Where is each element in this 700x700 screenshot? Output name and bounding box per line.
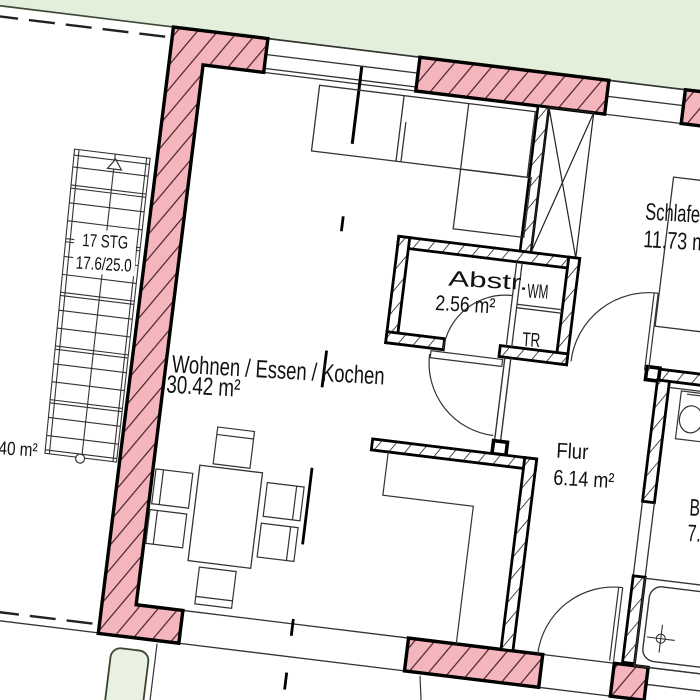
svg-text:2.56 m²: 2.56 m² xyxy=(435,291,496,318)
svg-text:17 STG: 17 STG xyxy=(82,230,129,253)
svg-text:Schlafen: Schlafen xyxy=(645,199,700,230)
svg-text:TR: TR xyxy=(522,329,541,352)
svg-text:7.2 m²: 7.2 m² xyxy=(687,520,700,550)
svg-text:Flur: Flur xyxy=(556,438,589,464)
svg-text:30.42 m²: 30.42 m² xyxy=(166,371,241,403)
svg-text:Abstr.: Abstr. xyxy=(448,266,529,295)
svg-text:Bad: Bad xyxy=(689,494,700,523)
svg-text:6.14 m²: 6.14 m² xyxy=(553,466,615,493)
svg-text:11.73 m²: 11.73 m² xyxy=(643,226,700,257)
svg-text:17.6/25.0: 17.6/25.0 xyxy=(75,253,132,276)
svg-text:40 m²: 40 m² xyxy=(0,438,38,461)
svg-text:WM: WM xyxy=(527,281,549,304)
